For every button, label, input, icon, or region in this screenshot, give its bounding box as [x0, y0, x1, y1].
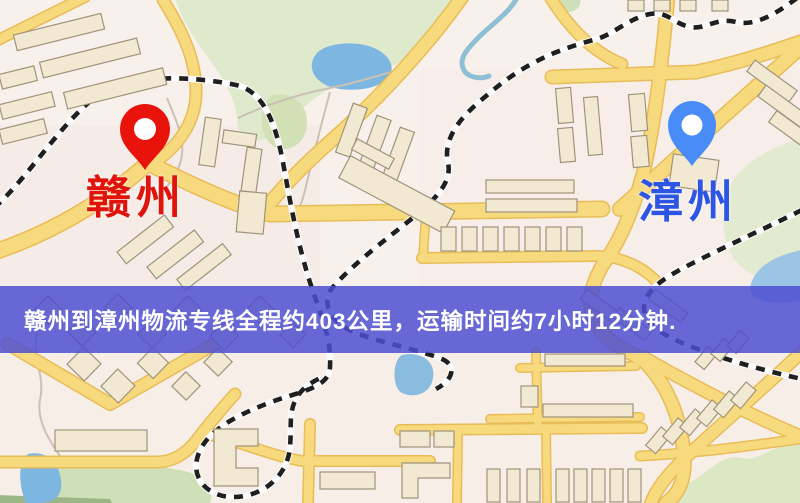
origin-city-label: 赣州 [86, 176, 186, 221]
map-canvas [0, 0, 800, 503]
route-info-banner: 赣州到漳州物流专线全程约403公里，运输时间约7小时12分钟. [0, 286, 800, 353]
destination-city-label: 漳州 [638, 180, 738, 225]
logistics-route-map-image: 赣州 漳州 赣州到漳州物流专线全程约403公里，运输时间约7小时12分钟. [0, 0, 800, 503]
route-info-text: 赣州到漳州物流专线全程约403公里，运输时间约7小时12分钟. [0, 304, 676, 336]
